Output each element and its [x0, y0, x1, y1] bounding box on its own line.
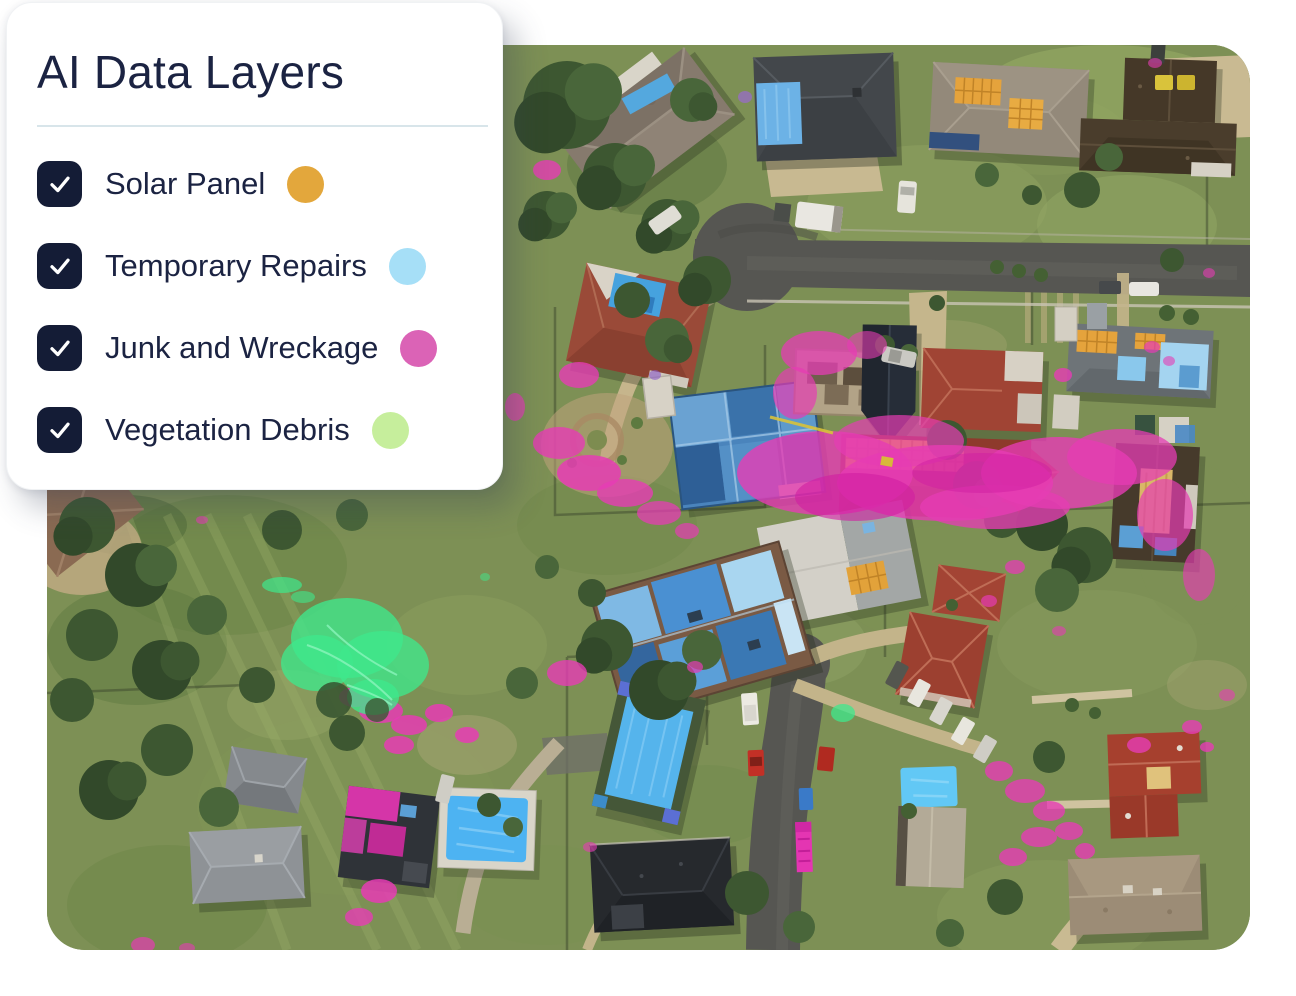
pool-tarp-small [900, 766, 957, 808]
temporary-repairs-color-dot [389, 248, 426, 285]
layer-label: Junk and Wreckage [105, 330, 378, 366]
house-black-roof [590, 837, 741, 942]
junk-wreckage-color-dot [400, 330, 437, 367]
solar-panel-checkbox[interactable] [37, 161, 82, 207]
layer-row-vegetation-debris[interactable]: Vegetation Debris [37, 407, 502, 453]
layer-row-junk-wreckage[interactable]: Junk and Wreckage [37, 325, 502, 371]
checkmark-icon [44, 250, 76, 282]
layer-row-solar-panel[interactable]: Solar Panel [37, 161, 502, 207]
checkmark-icon [44, 168, 76, 200]
house-tan-large [1068, 855, 1209, 945]
layer-label: Vegetation Debris [105, 412, 350, 448]
panel-title: AI Data Layers [37, 45, 466, 99]
divider [37, 125, 488, 127]
solar-panel-color-dot [287, 166, 324, 203]
house-dark-pink-junk [337, 786, 447, 898]
shed-white [643, 375, 676, 418]
layer-label: Temporary Repairs [105, 248, 367, 284]
vegetation-debris-checkbox[interactable] [37, 407, 82, 453]
checkmark-icon [44, 414, 76, 446]
house-charcoal-tarp [753, 52, 902, 170]
checkmark-icon [44, 332, 76, 364]
layers-panel: AI Data Layers Solar Panel Temporary Rep… [6, 2, 503, 490]
house-solar-panels-top [928, 62, 1095, 167]
house-red-hip-a [932, 565, 1006, 622]
layer-row-temporary-repairs[interactable]: Temporary Repairs [37, 243, 502, 289]
junk-covered-truck [795, 822, 813, 873]
layer-label: Solar Panel [105, 166, 265, 202]
temporary-repairs-checkbox[interactable] [37, 243, 82, 289]
page: AI Data Layers Solar Panel Temporary Rep… [0, 0, 1296, 996]
junk-wreckage-checkbox[interactable] [37, 325, 82, 371]
house-gray-solar-right [1066, 323, 1220, 408]
vegetation-debris-color-dot [372, 412, 409, 449]
house-gray-large [189, 826, 311, 913]
